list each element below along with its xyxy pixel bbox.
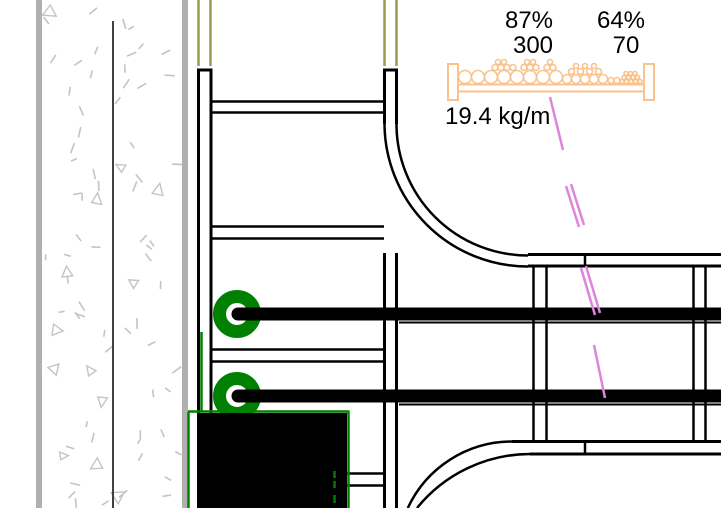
stipple-triangle <box>52 324 63 335</box>
stipple-dash <box>125 328 131 334</box>
cable-circle <box>581 75 590 84</box>
stipple-dash <box>79 106 83 115</box>
stipple-dash <box>172 367 181 373</box>
label-tray1-fill-percent[interactable]: 87% <box>505 7 553 34</box>
cable-circle <box>496 60 501 65</box>
cable-circle <box>608 78 614 84</box>
tray-fill-circles <box>459 60 643 84</box>
stipple-triangle <box>92 193 102 205</box>
duct-fillet-arc <box>417 454 530 508</box>
stipple-dash <box>71 143 75 153</box>
cable-circle <box>533 65 539 71</box>
stipple-dash <box>44 17 49 24</box>
stipple-triangle <box>116 165 126 173</box>
label-tray2-fill-percent[interactable]: 64% <box>597 7 645 34</box>
cable-circle <box>527 65 533 71</box>
stipple-dash <box>86 421 87 427</box>
stipple-dash <box>148 342 156 346</box>
stipple-dash <box>133 181 137 191</box>
cad-drawing-canvas[interactable]: 87% 300 64% 70 19.4 kg/m <box>0 0 721 508</box>
stipple-dash <box>140 235 146 242</box>
stipple-dash <box>145 254 151 262</box>
stipple-triangle <box>62 266 73 277</box>
cable-circle <box>472 71 485 84</box>
stipple-dash <box>64 254 71 256</box>
stipple-dash <box>129 26 134 29</box>
cable-circle <box>525 60 530 65</box>
cable-circle <box>544 65 550 71</box>
stipple-dash <box>50 55 55 63</box>
stipple-dash <box>165 388 170 392</box>
leader-segment <box>550 97 563 150</box>
cable-circle <box>614 78 620 84</box>
concrete-wall[interactable] <box>36 0 188 508</box>
tray-end-post <box>644 64 654 100</box>
stipple-dash <box>127 52 136 56</box>
cable-circle <box>550 71 563 84</box>
cable-circle <box>633 72 637 76</box>
cable-tray-section-symbol[interactable] <box>448 60 654 101</box>
cable-circle <box>578 69 584 75</box>
cable-circle <box>596 69 602 75</box>
cable-circle <box>587 69 593 75</box>
stipple-dash <box>93 169 95 179</box>
stipple-dash <box>102 501 109 506</box>
cable-circle <box>583 64 588 69</box>
stipple-dash <box>95 47 98 55</box>
stipple-dash <box>59 311 65 312</box>
stipple-dash <box>138 453 142 460</box>
stipple-dash <box>79 302 85 311</box>
stipple-dash <box>98 181 99 191</box>
stipple-triangle <box>43 5 57 16</box>
stipple-dash <box>175 451 181 455</box>
cable-circle <box>572 75 581 84</box>
cable-circle <box>485 71 498 84</box>
stipple-dash <box>150 240 154 246</box>
cable-circle <box>624 72 628 76</box>
stipple-dash <box>115 97 120 104</box>
cable-circle <box>599 75 608 84</box>
riser-duct-above[interactable] <box>199 0 397 66</box>
stipple-dash <box>130 142 134 148</box>
stipple-dash <box>90 71 92 79</box>
cable-circle <box>498 71 511 84</box>
equipment-box-fill <box>200 413 347 508</box>
stipple-dash <box>172 164 182 165</box>
cable-circle <box>511 71 524 84</box>
cable-circle <box>459 71 472 84</box>
wall-face-line-right <box>182 0 188 508</box>
stipple-dash <box>92 433 94 443</box>
stipple-dash <box>89 8 97 14</box>
stipple-dash <box>165 477 171 481</box>
stipple-dash <box>162 50 171 54</box>
cable-circle <box>548 60 553 65</box>
wall-face-line-left <box>36 0 42 508</box>
stipple-dash <box>165 75 175 76</box>
cable-circle <box>521 65 527 71</box>
duct-fillet-arc <box>397 124 529 256</box>
stipple-dash <box>75 498 76 508</box>
stipple-dash <box>69 492 75 499</box>
stipple-dash <box>163 495 172 496</box>
stipple-triangle <box>152 183 163 195</box>
stipple-dash <box>104 330 105 337</box>
stipple-dash <box>123 79 129 88</box>
cable-circle <box>592 64 597 69</box>
cable-circle <box>531 60 536 65</box>
leader-line[interactable] <box>550 97 605 398</box>
stipple-dash <box>73 193 82 195</box>
stipple-dash <box>123 19 126 29</box>
cable-circle <box>502 60 507 65</box>
cable-circle <box>636 76 640 80</box>
cable-circle <box>563 75 572 84</box>
cable-circle <box>498 65 504 71</box>
cable-circle <box>590 75 599 84</box>
cable-circle <box>504 65 510 71</box>
cable-circle <box>638 80 642 84</box>
cable-circle <box>492 65 498 71</box>
stipple-dash <box>138 438 141 443</box>
stipple-dash <box>139 44 144 49</box>
stipple-triangle <box>91 458 103 469</box>
stipple-dash <box>161 429 164 437</box>
stipple-dash <box>66 446 74 449</box>
cable-circle <box>524 71 537 84</box>
stipple-dash <box>71 158 77 161</box>
stipple-dash <box>153 389 154 397</box>
label-tray1-capacity[interactable]: 300 <box>513 32 553 59</box>
stipple-dash <box>78 127 80 138</box>
tray-end-post <box>448 64 458 100</box>
cable-circle <box>510 65 516 71</box>
cable-circle <box>569 69 575 75</box>
cable-circle <box>537 71 550 84</box>
stipple-dash <box>69 87 70 96</box>
drawing-svg: 87% 300 64% 70 19.4 kg/m <box>0 0 721 508</box>
duct-fillet-arc <box>385 123 529 267</box>
label-weight-per-meter[interactable]: 19.4 kg/m <box>445 103 550 130</box>
cable-circle <box>629 72 633 76</box>
stipple-dash <box>70 483 80 485</box>
cable-circle <box>550 65 556 71</box>
label-tray2-capacity[interactable]: 70 <box>613 32 640 59</box>
stipple-dash <box>137 83 146 88</box>
stipple-triangle <box>60 452 69 460</box>
stipple-dash <box>76 235 81 241</box>
stipple-dash <box>136 174 143 182</box>
stipple-dash <box>146 245 152 249</box>
stipple-triangle <box>129 280 139 289</box>
cable-circle <box>574 64 579 69</box>
stipple-triangle <box>87 366 96 376</box>
stipple-triangle <box>98 397 108 408</box>
stipple-triangle <box>48 364 59 375</box>
duct-fillet-arc <box>408 442 512 508</box>
stipple-dash <box>74 60 82 65</box>
